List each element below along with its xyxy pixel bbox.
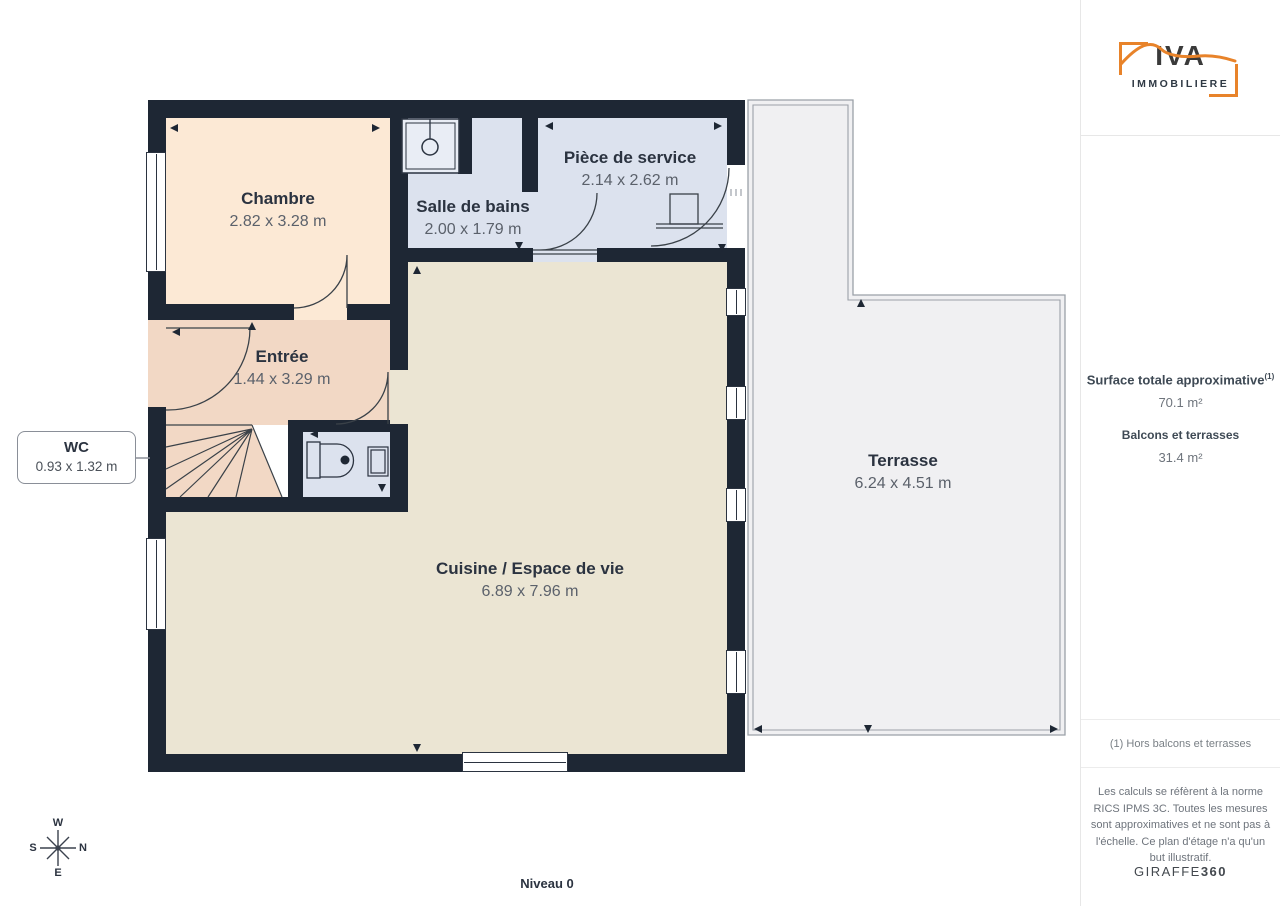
surface-summary: Surface totale approximative(1) 70.1 m² … [1081,372,1280,465]
logo-roof-swoosh-icon [1111,34,1251,74]
label-salle-de-bains: Salle de bains 2.00 x 1.79 m [416,195,529,241]
wall-chambre-bottom-left [148,304,294,320]
compass-left-label: S [29,842,36,854]
window-cuisine-left [146,538,166,630]
compass-right-label: N [79,842,87,854]
window-chambre-left [146,152,166,272]
wall-sdb-bottom [390,248,533,262]
room-cuisine-left [166,512,408,755]
wall-entree-right-upper [390,320,408,370]
entree-door-opening [390,370,408,424]
label-cuisine: Cuisine / Espace de vie 6.89 x 7.96 m [436,557,624,603]
room-name: Salle de bains [416,195,529,219]
label-piece-de-service: Pièce de service 2.14 x 2.62 m [564,146,696,192]
wall-pds-bottom [597,248,745,262]
front-door-opening [148,320,166,407]
surface-title: Surface totale approximative(1) [1081,372,1280,387]
window-right-2 [726,386,746,420]
surface-title-superscript: (1) [1264,372,1274,381]
room-name: Cuisine / Espace de vie [436,557,624,581]
giraffe360-name: GIRAFFE [1134,864,1201,879]
room-dims: 2.82 x 3.28 m [230,211,327,233]
compass-rose: W N E S [14,802,102,894]
pds-door-opening [533,248,597,262]
level-label: Niveau 0 [520,876,573,891]
label-wc: WC 0.93 x 1.32 m [17,431,136,484]
window-right-3 [726,488,746,522]
surface-title-text: Surface totale approximative [1087,372,1265,387]
logo-subtitle: IMMOBILIERE [1081,78,1280,90]
terrasse-door-opening [727,165,745,248]
chambre-door-opening [294,304,347,320]
wall-top [148,100,745,118]
agency-logo: IVA IMMOBILIERE [1081,0,1280,136]
floor-plan-page: Chambre 2.82 x 3.28 m Salle de bains 2.0… [0,0,1280,906]
room-dims: 2.00 x 1.79 m [416,219,529,241]
room-dims: 6.24 x 4.51 m [855,473,952,495]
room-dims: 6.89 x 7.96 m [436,581,624,603]
room-dims: 1.44 x 3.29 m [234,369,331,391]
room-name: Chambre [230,187,327,211]
room-cuisine-right [408,262,727,755]
room-name: Pièce de service [564,146,696,170]
label-entree: Entrée 1.44 x 3.29 m [234,345,331,391]
wall-chambre-sdb [390,118,408,320]
stairwell-area [166,424,288,497]
legal-disclaimer: Les calculs se réfèrent à la norme RICS … [1090,784,1271,867]
room-name: WC [18,438,135,458]
giraffe360-brand: GIRAFFE360 [1081,864,1280,879]
room-dims: 2.14 x 2.62 m [564,170,696,192]
window-right-4 [726,650,746,694]
room-name: Entrée [234,345,331,369]
wall-chambre-bottom-right [347,304,390,320]
wall-bottom [148,754,745,772]
balconies-value: 31.4 m² [1081,450,1280,465]
wall-below-wc-stairs [148,497,408,512]
surface-footnote: (1) Hors balcons et terrasses [1081,719,1280,768]
compass-bottom-label: E [54,867,61,879]
room-name: Terrasse [855,449,952,473]
terrasse-outline [748,100,1065,735]
compass-top-label: W [53,817,63,829]
wall-stub-sdb-pds [522,118,538,192]
surface-total-value: 70.1 m² [1081,395,1280,410]
room-wc [303,432,390,497]
giraffe360-suffix: 360 [1201,864,1227,879]
room-dims: 0.93 x 1.32 m [18,458,135,476]
window-right-1 [726,288,746,316]
compass-star-icon [14,802,102,894]
balconies-label: Balcons et terrasses [1081,428,1280,442]
label-terrasse: Terrasse 6.24 x 4.51 m [855,449,952,495]
wall-stub-shower [458,118,472,174]
window-cuisine-bottom [462,752,568,772]
label-chambre: Chambre 2.82 x 3.28 m [230,187,327,233]
sidebar: IVA IMMOBILIERE Surface totale approxima… [1080,0,1280,906]
